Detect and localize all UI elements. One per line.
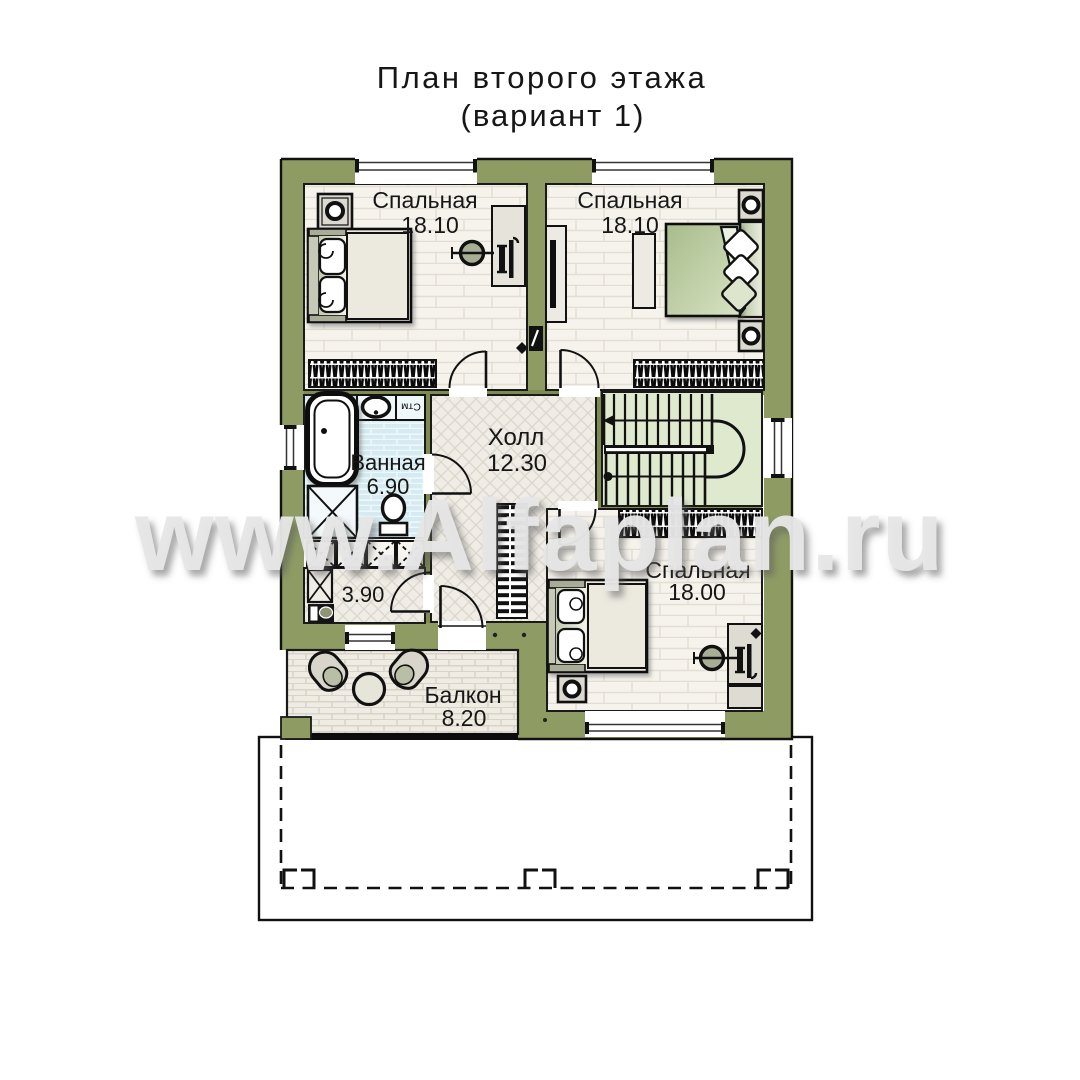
svg-text:План второго этажа: План второго этажа: [377, 60, 707, 95]
svg-text:Холл: Холл: [488, 424, 545, 451]
svg-text:18.10: 18.10: [601, 212, 659, 238]
svg-text:Спальная: Спальная: [577, 187, 682, 213]
svg-text:(вариант 1): (вариант 1): [461, 98, 646, 133]
svg-text:Спальная: Спальная: [372, 187, 477, 213]
svg-text:Ванная: Ванная: [350, 450, 425, 475]
svg-text:www.Alfaplan.ru: www.Alfaplan.ru: [134, 480, 945, 592]
svg-text:18.10: 18.10: [401, 212, 459, 238]
svg-text:8.20: 8.20: [442, 705, 487, 731]
svg-text:Стм: Стм: [401, 401, 421, 413]
svg-text:12.30: 12.30: [487, 450, 547, 477]
